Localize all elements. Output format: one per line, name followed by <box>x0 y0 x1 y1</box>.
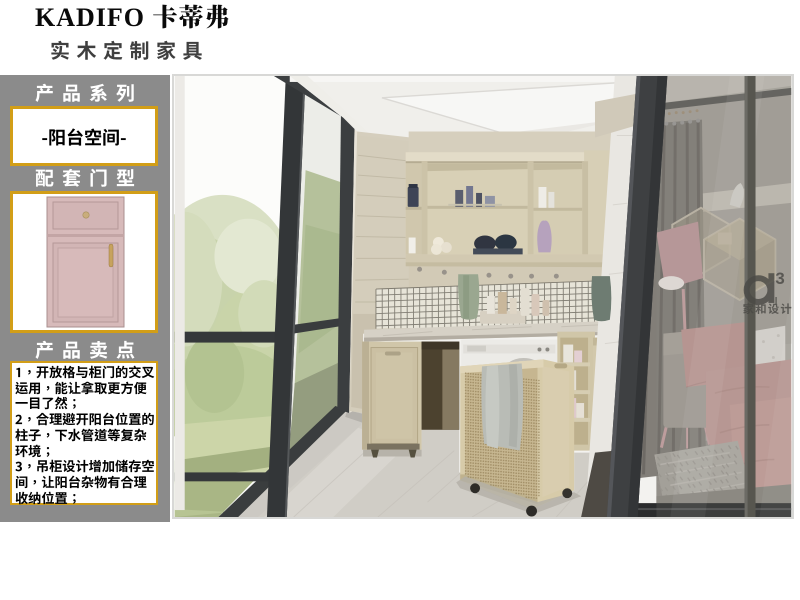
svg-text:3: 3 <box>775 269 784 288</box>
svg-text:家和设计: 家和设计 <box>743 303 793 316</box>
